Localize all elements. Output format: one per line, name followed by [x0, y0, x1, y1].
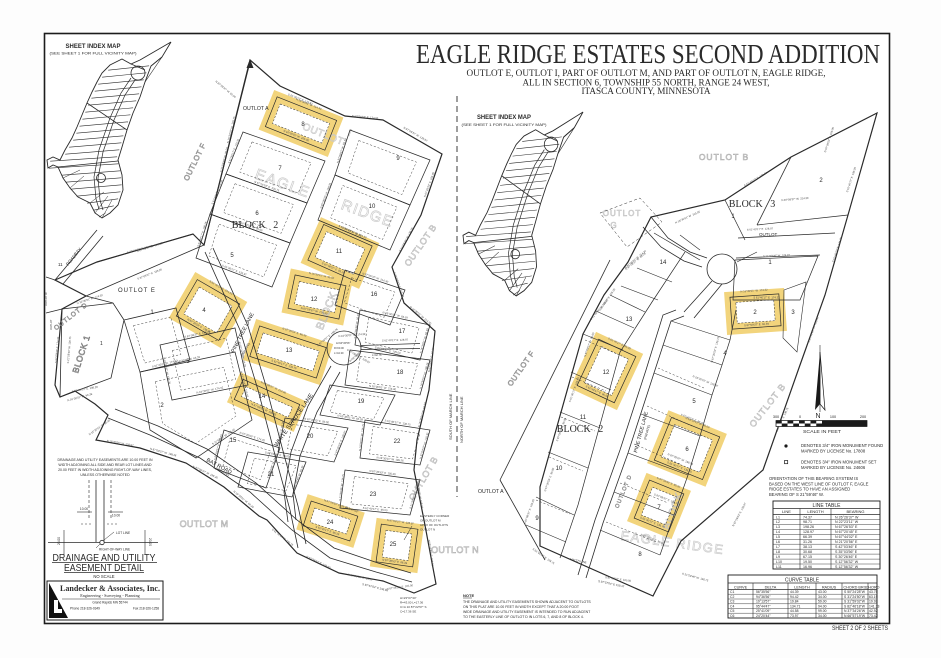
svg-text:OUTLOT N: OUTLOT N [431, 545, 479, 555]
svg-text:SOUTH OF MARCH LINE: SOUTH OF MARCH LINE [448, 393, 453, 440]
svg-text:C1: C1 [730, 590, 734, 594]
svg-text:DENOTES 3/4" IRON MONUMENT SET: DENOTES 3/4" IRON MONUMENT SET [801, 460, 877, 465]
svg-text:1: 1 [100, 341, 103, 347]
svg-text:11: 11 [336, 249, 343, 255]
svg-text:SHEET INDEX MAP: SHEET INDEX MAP [477, 114, 531, 121]
svg-text:Fax 218-326-1258: Fax 218-326-1258 [133, 607, 159, 611]
svg-text:34.00: 34.00 [818, 614, 827, 618]
svg-text:N 21°20'56" E: N 21°20'56" E [835, 540, 858, 544]
svg-text:N 22°23'11" W: N 22°23'11" W [835, 520, 859, 524]
svg-text:SCALE IN FEET: SCALE IN FEET [803, 429, 841, 434]
svg-text:22: 22 [394, 439, 401, 445]
svg-text:N 37°34'26"W: N 37°34'26"W [844, 609, 866, 613]
svg-text:C4: C4 [730, 604, 734, 608]
svg-text:L9: L9 [776, 555, 780, 559]
svg-text:BEARING OF S 21°59'46" W.: BEARING OF S 21°59'46" W. [769, 492, 824, 497]
svg-text:DENOTES 3/4" IRON MONUMENT FOU: DENOTES 3/4" IRON MONUMENT FOUND [801, 443, 883, 448]
svg-text:CHORD BRG: CHORD BRG [843, 585, 866, 589]
svg-text:99.00: 99.00 [818, 609, 827, 613]
svg-text:EAGLE RIDGE ESTATES SECOND ADD: EAGLE RIDGE ESTATES SECOND ADDITION [416, 39, 880, 69]
svg-text:14: 14 [660, 260, 667, 266]
svg-text:BLOCK 2: BLOCK 2 [557, 424, 603, 435]
svg-text:42.92: 42.92 [869, 609, 878, 613]
svg-text:19: 19 [358, 399, 365, 405]
svg-text:67.15: 67.15 [803, 555, 812, 559]
svg-text:N: N [815, 413, 820, 420]
svg-text:ON THIS PLAT ARE 10.00 FEET IN: ON THIS PLAT ARE 10.00 FEET IN WIDTH EXC… [463, 605, 580, 609]
svg-text:R=60.00: R=60.00 [334, 346, 344, 350]
svg-text:G: G [610, 221, 617, 230]
svg-text:R=43.00 L=17.36: R=43.00 L=17.36 [400, 601, 424, 605]
svg-text:Engineering - Surveying - Plan: Engineering - Surveying - Planning [80, 593, 140, 598]
svg-text:19.50: 19.50 [803, 560, 812, 564]
svg-text:30.68: 30.68 [803, 550, 812, 554]
svg-text:43.75: 43.75 [869, 590, 878, 594]
svg-text:S 12°56'32" W: S 12°56'32" W [835, 560, 859, 564]
svg-text:19.84: 19.84 [790, 600, 799, 604]
svg-text:N 67°26'53" E: N 67°26'53" E [835, 525, 858, 529]
svg-text:EASTERLY CORNER: EASTERLY CORNER [420, 514, 450, 518]
svg-text:LENGTH: LENGTH [794, 585, 810, 589]
svg-text:38.13: 38.13 [803, 545, 812, 549]
svg-text:95°44'47": 95°44'47" [756, 604, 771, 608]
svg-text:DELTA: DELTA [765, 585, 777, 589]
svg-text:OUTLOT A: OUTLOT A [243, 106, 269, 112]
svg-text:L5: L5 [776, 535, 780, 539]
svg-text:43.00: 43.00 [818, 590, 827, 594]
svg-text:SHEET 2 OF 2 SHEETS: SHEET 2 OF 2 SHEETS [832, 626, 888, 632]
svg-text:S 82°46'18"W: S 82°46'18"W [844, 604, 866, 608]
svg-text:LINE: LINE [782, 509, 791, 514]
svg-text:OUTLOT: OUTLOT [603, 209, 641, 218]
svg-text:L4: L4 [776, 530, 780, 534]
svg-text:C6: C6 [730, 614, 734, 618]
svg-text:OUTLOT E: OUTLOT E [118, 288, 156, 294]
svg-text:Landecker & Associates, Inc.: Landecker & Associates, Inc. [60, 584, 160, 593]
svg-text:63.19: 63.19 [869, 595, 878, 599]
svg-text:S 50°24'28"W: S 50°24'28"W [844, 590, 866, 594]
svg-text:12: 12 [603, 370, 610, 376]
svg-text:44.58: 44.58 [790, 609, 799, 613]
svg-text:N 26°26'37" W: N 26°26'37" W [835, 515, 859, 519]
svg-text:14: 14 [259, 394, 266, 400]
svg-text:17: 17 [399, 329, 406, 335]
svg-text:Phone 218-326-0349: Phone 218-326-0349 [70, 607, 100, 611]
svg-text:BLOCK 3: BLOCK 3 [729, 199, 775, 210]
svg-text:N 67°20'45" E: N 67°20'45" E [835, 530, 858, 534]
svg-text:C2: C2 [730, 595, 734, 599]
svg-text:OF OUTLOT M: OF OUTLOT M [420, 519, 441, 523]
svg-text:98.71: 98.71 [803, 520, 812, 524]
svg-text:Grand Rapids MN 55744: Grand Rapids MN 55744 [92, 601, 127, 605]
svg-text:C=A 10 87°22'57" S: C=A 10 87°22'57" S [400, 605, 426, 609]
svg-text:300: 300 [773, 415, 779, 419]
svg-text:LOT LINE: LOT LINE [116, 531, 130, 535]
svg-text:Δ=23°07'34": Δ=23°07'34" [400, 596, 417, 600]
svg-text:NOTE: NOTE [463, 593, 474, 598]
svg-text:L10: L10 [776, 560, 782, 564]
svg-text:ORIENTATION OF THIS BEARING SY: ORIENTATION OF THIS BEARING SYSTEM IS [769, 476, 858, 481]
svg-text:S 61°40'17" E 174.32: S 61°40'17" E 174.32 [753, 296, 780, 300]
svg-text:OUTLOT B: OUTLOT B [699, 152, 749, 162]
svg-text:23: 23 [370, 492, 377, 498]
svg-text:94°36'56": 94°36'56" [756, 595, 771, 599]
svg-text:12: 12 [311, 297, 318, 303]
svg-text:RADIUS: RADIUS [822, 585, 837, 589]
svg-text:BASED ON THE WEST LINE OF OUTL: BASED ON THE WEST LINE OF OUTLOT F, EAGL… [769, 481, 869, 486]
svg-text:C3: C3 [730, 600, 734, 604]
svg-text:24°20'44": 24°20'44" [756, 614, 771, 618]
svg-text:73.42: 73.42 [869, 614, 878, 618]
svg-text:10.00: 10.00 [80, 507, 88, 511]
svg-text:56°35'56": 56°35'56" [756, 590, 771, 594]
svg-text:BLOCK 2: BLOCK 2 [232, 220, 278, 231]
svg-text:25: 25 [390, 542, 397, 548]
svg-text:CURVE: CURVE [734, 585, 748, 589]
svg-text:134.71: 134.71 [790, 604, 800, 608]
svg-text:UNLESS OTHERWISE NOTED: UNLESS OTHERWISE NOTED [80, 473, 130, 477]
svg-text:L6: L6 [776, 540, 780, 544]
svg-text:10: 10 [369, 204, 376, 210]
svg-text:N 67°44'02" E: N 67°44'02" E [835, 535, 858, 539]
svg-text:198.26: 198.26 [803, 525, 814, 529]
svg-text:11: 11 [580, 415, 587, 421]
svg-text:19.92: 19.92 [869, 600, 878, 604]
svg-text:128.97: 128.97 [803, 530, 814, 534]
svg-text:APEX OF OUTLOTS: APEX OF OUTLOTS [420, 523, 448, 527]
svg-text:NORTH OF MARCH LINE: NORTH OF MARCH LINE [459, 396, 464, 443]
svg-text:C5: C5 [730, 609, 734, 613]
svg-text:S 12°56'32" W: S 12°56'32" W [835, 565, 859, 569]
svg-text:L1: L1 [776, 515, 780, 519]
svg-text:16: 16 [371, 292, 378, 298]
svg-text:0: 0 [799, 415, 801, 419]
svg-text:94.00: 94.00 [818, 604, 827, 608]
svg-text:N 66°57'19"W: N 66°57'19"W [844, 614, 866, 618]
svg-text:LENGTH: LENGTH [807, 509, 823, 514]
svg-text:THE DRAINAGE AND UTILITY EASEM: THE DRAINAGE AND UTILITY EASEMENTS SHOWN… [463, 600, 591, 604]
svg-text:L=44.39: L=44.39 [334, 351, 344, 355]
svg-text:C=17.36 SE: C=17.36 SE [400, 610, 416, 614]
svg-text:OUTLOT: OUTLOT [49, 319, 53, 330]
svg-text:L2: L2 [776, 520, 780, 524]
svg-text:74.37: 74.37 [803, 515, 812, 519]
svg-text:20.00: 20.00 [148, 538, 152, 546]
svg-text:18: 18 [397, 370, 404, 376]
svg-text:34.00: 34.00 [818, 595, 827, 599]
svg-text:BEARING: BEARING [846, 509, 864, 514]
svg-text:L3: L3 [776, 525, 780, 529]
svg-text:OUTLOT N: OUTLOT N [420, 528, 435, 532]
svg-text:24: 24 [327, 520, 334, 526]
svg-text:RIGHT-OF-WAY LINE: RIGHT-OF-WAY LINE [99, 548, 130, 552]
svg-text:(SEE SHEET 1 FOR FULL VICINITY: (SEE SHEET 1 FOR FULL VICINITY MAP) [462, 122, 548, 127]
svg-text:MARKED BY LICENSE No. 24606: MARKED BY LICENSE No. 24606 [801, 465, 866, 470]
svg-text:LINE TABLE: LINE TABLE [813, 503, 842, 509]
svg-text:S 30°26'46" E: S 30°26'46" E [835, 555, 858, 559]
svg-text:OUTLOT E, OUTLOT I, PART OF OU: OUTLOT E, OUTLOT I, PART OF OUTLOT M, AN… [467, 68, 826, 78]
svg-text:TO THE EASTERLY LINE OF OUTLOT: TO THE EASTERLY LINE OF OUTLOT D IN LOTS… [463, 615, 584, 619]
svg-text:11: 11 [58, 262, 63, 267]
svg-text:MARKED BY LICENSE No. 17808: MARKED BY LICENSE No. 17808 [801, 449, 866, 454]
svg-text:20: 20 [307, 434, 314, 440]
svg-text:66.39: 66.39 [803, 535, 812, 539]
svg-text:L11: L11 [776, 565, 782, 569]
svg-text:OUTLOT M: OUTLOT M [180, 519, 229, 529]
svg-text:20.00: 20.00 [57, 537, 61, 545]
svg-text:OUTLOT W: OUTLOT W [44, 292, 48, 306]
svg-text:S 31°24'50"W: S 31°24'50"W [844, 595, 866, 599]
svg-text:OUTLOT: OUTLOT [759, 232, 778, 237]
svg-text:10.00: 10.00 [112, 514, 120, 518]
svg-text:CHORD: CHORD [866, 585, 880, 589]
svg-text:S 31°59'02"W: S 31°59'02"W [844, 600, 866, 604]
svg-text:13: 13 [626, 317, 633, 323]
svg-text:OUTLOT A: OUTLOT A [478, 489, 504, 495]
svg-text:WIDTH ADJOINING ALL SIDE AND: WIDTH ADJOINING ALL SIDE AND REAR LOT LI… [58, 463, 152, 467]
svg-text:S 42°03'46" E: S 42°03'46" E [835, 545, 858, 549]
svg-text:NO SCALE: NO SCALE [93, 574, 114, 579]
svg-text:200: 200 [860, 415, 866, 419]
svg-text:25°41'09": 25°41'09" [756, 609, 771, 613]
svg-text:19°13'57": 19°13'57" [756, 600, 771, 604]
svg-text:31.26: 31.26 [803, 540, 812, 544]
svg-text:10: 10 [556, 466, 563, 472]
svg-text:13: 13 [286, 348, 293, 354]
svg-text:16.96: 16.96 [803, 565, 812, 569]
svg-text:SHEET INDEX MAP: SHEET INDEX MAP [66, 43, 121, 50]
svg-text:59.00: 59.00 [818, 600, 827, 604]
svg-text:L7: L7 [776, 545, 780, 549]
svg-text:DRAINAGE AND UTILITY EASEMENTS: DRAINAGE AND UTILITY EASEMENTS ARE 10.00… [58, 458, 153, 462]
svg-text:15: 15 [230, 438, 237, 444]
svg-text:S 35°03'56" E: S 35°03'56" E [835, 550, 858, 554]
svg-text:RIDGE ESTATES TO HAVE AN ASSIG: RIDGE ESTATES TO HAVE AN ASSIGNED [769, 487, 850, 492]
svg-text:(SEE SHEET 1 FOR FULL VICINITY: (SEE SHEET 1 FOR FULL VICINITY MAP) [50, 51, 138, 56]
svg-text:141.33: 141.33 [869, 604, 879, 608]
svg-text:ITASCA COUNTY, MINNESOTA: ITASCA COUNTY, MINNESOTA [582, 86, 712, 96]
svg-text:CURVE TABLE: CURVE TABLE [785, 578, 820, 584]
svg-text:44.39: 44.39 [790, 590, 799, 594]
svg-text:Δ=94°36'56": Δ=94°36'56" [336, 341, 350, 345]
svg-text:20.00 FEET IN WIDTH ADJOINING: 20.00 FEET IN WIDTH ADJOINING RIGHT-OF-W… [58, 468, 152, 472]
svg-text:L8: L8 [776, 550, 780, 554]
svg-text:WIDE DRAINAGE AND UTILITY EASE: WIDE DRAINAGE AND UTILITY EASEMENT IS IN… [463, 610, 591, 614]
svg-text:100: 100 [830, 415, 836, 419]
svg-text:94.42: 94.42 [790, 595, 799, 599]
svg-text:21: 21 [268, 472, 275, 478]
svg-text:73.97: 73.97 [790, 614, 799, 618]
